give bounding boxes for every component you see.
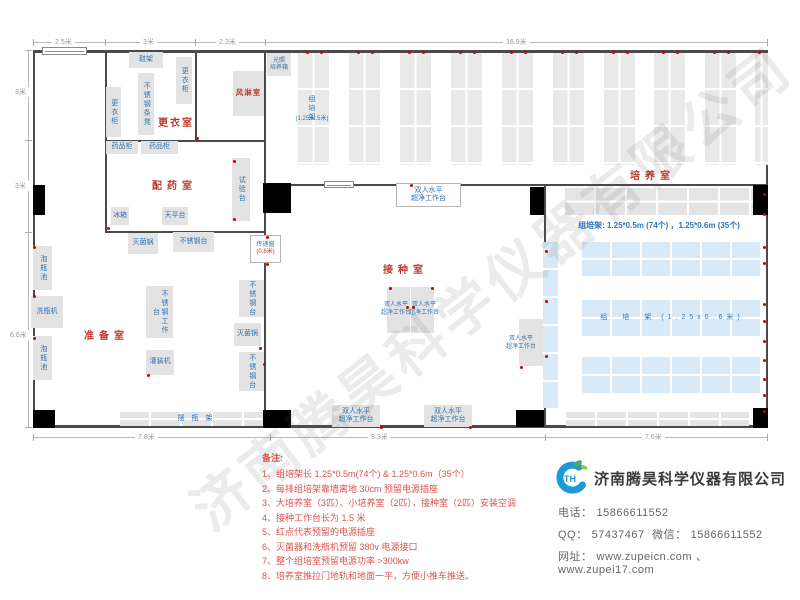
culture-rack-column xyxy=(755,53,768,165)
bench-center-2-label: 双人水平 超净工作台 xyxy=(401,299,447,319)
power-outlet-dot xyxy=(233,218,236,221)
power-outlet-dot xyxy=(196,137,199,140)
blue-rack-strip xyxy=(543,242,558,408)
culture-shelf-top xyxy=(565,188,753,215)
dimension-tick xyxy=(25,140,32,141)
power-outlet-dot xyxy=(320,51,323,54)
power-outlet-dot xyxy=(713,51,716,54)
company-name: 济南腾昊科学仪器有限公司 xyxy=(594,468,786,489)
dimension-tick xyxy=(767,39,768,46)
clean-bench-top: 双人水平 超净工作台 xyxy=(396,183,461,207)
power-outlet-dot xyxy=(524,51,527,54)
note-item: 2、每排组培架靠墙离地 30cm 预留电源插座 xyxy=(262,482,516,497)
structural-column xyxy=(263,410,291,428)
dimension-tick xyxy=(195,39,196,46)
culture-rack-column xyxy=(349,53,380,165)
power-outlet-dot xyxy=(380,426,383,429)
bench-right-label: 双人水平 超净工作台 xyxy=(499,333,543,353)
bottle-rack-label: 摆 瓶 架 xyxy=(155,413,235,425)
blue-rack-row-1 xyxy=(582,242,762,276)
balance-table: 天平台 xyxy=(162,207,188,225)
dimension-tick xyxy=(25,427,32,428)
company-phone-line: 电话：15866611552 xyxy=(558,504,800,520)
power-outlet-dot xyxy=(676,51,679,54)
power-outlet-dot xyxy=(763,303,766,306)
steel-table-1: 不锈钢台 xyxy=(173,232,214,252)
culture-shelf-bottom xyxy=(566,412,749,426)
power-outlet-dot xyxy=(545,355,548,358)
medicine-cabinet-2: 药品柜 xyxy=(141,141,178,154)
shoe-rack: 鞋架 xyxy=(129,52,163,68)
door-marker xyxy=(42,47,87,55)
dimension-line xyxy=(28,50,29,428)
power-outlet-dot xyxy=(727,51,730,54)
note-item: 7、整个组培室预留电源功率 >300kw xyxy=(262,554,516,569)
power-outlet-dot xyxy=(371,51,374,54)
power-outlet-dot xyxy=(259,347,262,350)
structural-column xyxy=(263,183,291,213)
pass-window: 传递窗(0.6米) xyxy=(250,235,281,263)
power-outlet-dot xyxy=(431,287,434,290)
structural-column xyxy=(516,410,544,427)
power-outlet-dot xyxy=(410,184,413,187)
locker-cabinet-right: 更衣柜 xyxy=(176,57,192,104)
blue-rack-row-3 xyxy=(582,357,762,393)
notes-section: 备注: 1、组培架长 1.25*0.5m(74个) & 1.25*0.6m（35… xyxy=(262,451,516,583)
power-outlet-dot xyxy=(33,337,36,340)
clean-bench-bottom-1: 双人水平 超净工作台 xyxy=(332,405,380,427)
culture-rack-column xyxy=(502,53,533,165)
web-label: 网址： xyxy=(558,551,593,563)
culture-rack-column xyxy=(705,53,736,165)
power-outlet-dot xyxy=(33,246,36,249)
room-label-inoculation: 接种室 xyxy=(383,261,428,276)
power-outlet-dot xyxy=(406,306,409,309)
power-outlet-dot xyxy=(473,51,476,54)
note-item: 5、红点代表预留的电源插座 xyxy=(262,525,516,540)
steel-table-3: 不锈钢台 xyxy=(239,352,264,391)
power-outlet-dot xyxy=(612,51,615,54)
power-outlet-dot xyxy=(758,51,761,54)
power-outlet-dot xyxy=(662,51,665,54)
power-outlet-dot xyxy=(389,287,392,290)
power-outlet-dot xyxy=(763,193,766,196)
power-outlet-dot xyxy=(357,51,360,54)
svg-text:TH: TH xyxy=(564,474,576,484)
note-item: 6、灭菌器和洗瓶机预留 380v 电源接口 xyxy=(262,540,516,555)
pass-window-size: (0.6米) xyxy=(256,249,274,256)
power-outlet-dot xyxy=(107,227,110,230)
culture-rack-column xyxy=(654,53,685,165)
steel-worktable: 不锈钢工作台 xyxy=(146,286,173,338)
dimension-tick xyxy=(33,434,34,441)
dimension-tick xyxy=(25,232,32,233)
dimension-label: 16.9米 xyxy=(503,37,530,47)
dimension-tick xyxy=(105,39,106,46)
website-1: www.zupeicn.com xyxy=(597,551,693,563)
room-label-prep: 准备室 xyxy=(84,327,129,342)
power-outlet-dot xyxy=(147,374,150,377)
dimension-label: 3米 xyxy=(12,181,29,191)
power-outlet-dot xyxy=(33,295,36,298)
soak-pool-1: 泡瓶池 xyxy=(33,246,52,290)
website-2: www.zupei17.com xyxy=(558,564,654,576)
wechat-label: 微信： xyxy=(652,529,687,541)
power-outlet-dot xyxy=(459,51,462,54)
dimension-tick xyxy=(270,434,271,441)
power-outlet-dot xyxy=(763,246,766,249)
lab-floorplan-page: 鞋架更衣柜不锈钢条凳更衣柜风淋室光照 培养箱药品柜药品柜试验台冰箱天平台灭菌锅不… xyxy=(0,0,800,600)
power-outlet-dot xyxy=(266,263,269,266)
company-logo-icon: TH xyxy=(552,458,588,498)
fridge: 冰箱 xyxy=(111,207,129,225)
power-outlet-dot xyxy=(263,363,266,366)
power-outlet-dot xyxy=(626,51,629,54)
test-bench: 试验台 xyxy=(232,158,250,221)
bottle-washer: 洗瓶机 xyxy=(31,296,63,328)
note-item: 3、大培养室（3匹）、小培养室（2匹），接种室（2匹）安装空调 xyxy=(262,496,516,511)
light-incubator: 光照 培养箱 xyxy=(267,53,291,76)
steel-table-2: 不锈钢台 xyxy=(239,280,264,317)
power-outlet-dot xyxy=(422,51,425,54)
power-outlet-dot xyxy=(266,236,269,239)
dimension-tick xyxy=(545,434,546,441)
power-outlet-dot xyxy=(763,378,766,381)
power-outlet-dot xyxy=(510,51,513,54)
dimension-tick xyxy=(265,39,266,46)
culture-rack-column xyxy=(604,53,635,165)
power-outlet-dot xyxy=(763,394,766,397)
power-outlet-dot xyxy=(545,300,548,303)
room-label-dispensing: 配药室 xyxy=(152,177,197,192)
dimension-label: 3米 xyxy=(12,87,29,97)
steel-strip-bench: 不锈钢条凳 xyxy=(138,73,154,135)
dimension-tick xyxy=(25,50,32,51)
phone-label: 电话： xyxy=(558,507,593,519)
culture-rack-column xyxy=(451,53,482,165)
door-marker xyxy=(324,181,354,188)
company-info: TH 济南腾昊科学仪器有限公司 电话：15866611552 QQ：574374… xyxy=(552,458,800,576)
phone-value: 15866611552 xyxy=(597,507,669,519)
culture-rack-column xyxy=(400,53,431,165)
rack-column-size: (1.25x0.5米) xyxy=(286,114,338,124)
web-separator: 、 xyxy=(696,551,708,563)
dimension-label: 2.5米 xyxy=(52,37,75,47)
company-qq-line: QQ：57437467 微信：15866611552 xyxy=(558,526,800,542)
power-outlet-dot xyxy=(306,51,309,54)
power-outlet-dot xyxy=(469,426,472,429)
note-item: 1、组培架长 1.25*0.5m(74个) & 1.25*0.6m（35个） xyxy=(262,467,516,482)
power-outlet-dot xyxy=(520,366,523,369)
qq-label: QQ： xyxy=(558,529,588,541)
qq-value: 57437467 xyxy=(592,529,645,541)
structural-column xyxy=(33,410,55,428)
wechat-value: 15866611552 xyxy=(691,529,763,541)
power-outlet-dot xyxy=(763,359,766,362)
structural-column xyxy=(530,187,544,215)
medicine-cabinet-1: 药品柜 xyxy=(106,141,138,154)
room-label-culture: 培养室 xyxy=(630,167,675,182)
note-item: 4、接种工作台长为 1.5 米 xyxy=(262,511,516,526)
sterilizer-2: 灭菌锅 xyxy=(234,323,261,346)
dimension-label: 7.6米 xyxy=(642,432,665,442)
power-outlet-dot xyxy=(412,306,415,309)
power-outlet-dot xyxy=(763,410,766,413)
structural-column xyxy=(33,185,45,215)
rack-spec-line: 组培架: 1.25*0.5m (74个) ，1.25*0.6m (35个) xyxy=(552,219,766,232)
power-outlet-dot xyxy=(763,213,766,216)
dimension-label: 3米 xyxy=(140,37,157,47)
wall-segment xyxy=(195,50,197,141)
note-item: 8、培养室推拉门地轨和地面一平，方便小推车推送。 xyxy=(262,569,516,584)
power-outlet-dot xyxy=(575,51,578,54)
culture-rack-column xyxy=(553,53,584,165)
clean-bench-bottom-2: 双人水平 超净工作台 xyxy=(424,405,472,427)
notes-list: 1、组培架长 1.25*0.5m(74个) & 1.25*0.6m（35个）2、… xyxy=(262,467,516,583)
company-web-line: 网址：www.zupeicn.com、www.zupei17.com xyxy=(558,548,800,576)
room-label-dressing: 更衣室 xyxy=(158,114,194,129)
structural-column xyxy=(753,185,768,215)
sterilizer-1: 灭菌锅 xyxy=(128,233,158,254)
dimension-label: 7.8米 xyxy=(135,432,158,442)
power-outlet-dot xyxy=(763,262,766,265)
dimension-tick xyxy=(33,39,34,46)
dimension-label: 9.3米 xyxy=(368,432,391,442)
soak-pool-2: 泡瓶池 xyxy=(33,336,52,380)
power-outlet-dot xyxy=(561,51,564,54)
power-outlet-dot xyxy=(545,250,548,253)
dimension-label: 6.6米 xyxy=(7,330,30,340)
power-outlet-dot xyxy=(763,340,766,343)
blue-rack-label: 组 培 架 (1.25x0.6米) xyxy=(592,311,752,324)
filling-machine: 灌装机 xyxy=(146,350,174,375)
power-outlet-dot xyxy=(763,320,766,323)
dimension-label: 2.3米 xyxy=(216,37,239,47)
power-outlet-dot xyxy=(408,51,411,54)
locker-cabinet-left: 更衣柜 xyxy=(106,87,121,137)
notes-title: 备注: xyxy=(262,451,516,464)
power-outlet-dot xyxy=(233,160,236,163)
air-shower: 风淋室 xyxy=(233,71,264,116)
dimension-tick xyxy=(767,434,768,441)
